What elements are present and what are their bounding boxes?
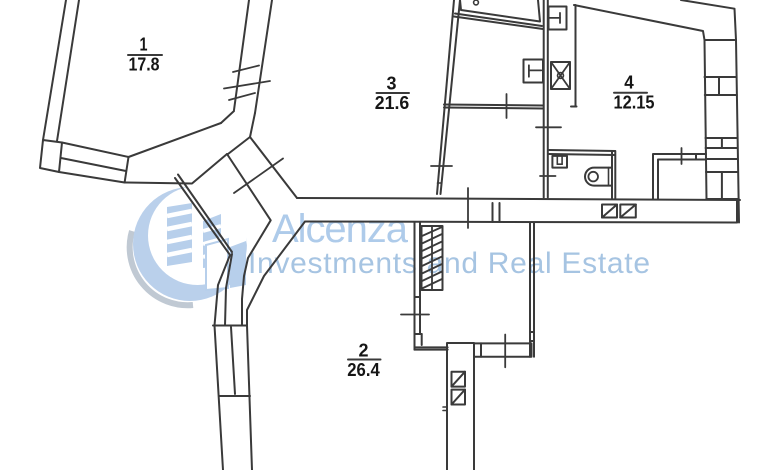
svg-text:17.8: 17.8 <box>129 55 160 75</box>
svg-text:Investments and Real Estate: Investments and Real Estate <box>248 247 650 280</box>
svg-text:1: 1 <box>140 35 148 55</box>
svg-text:3: 3 <box>387 74 397 94</box>
svg-text:12.15: 12.15 <box>614 92 655 112</box>
svg-text:21.6: 21.6 <box>375 93 410 113</box>
svg-text:2: 2 <box>359 341 369 361</box>
svg-text:4: 4 <box>624 72 634 92</box>
svg-text:26.4: 26.4 <box>347 360 380 380</box>
svg-text:Alcenza: Alcenza <box>272 207 409 251</box>
